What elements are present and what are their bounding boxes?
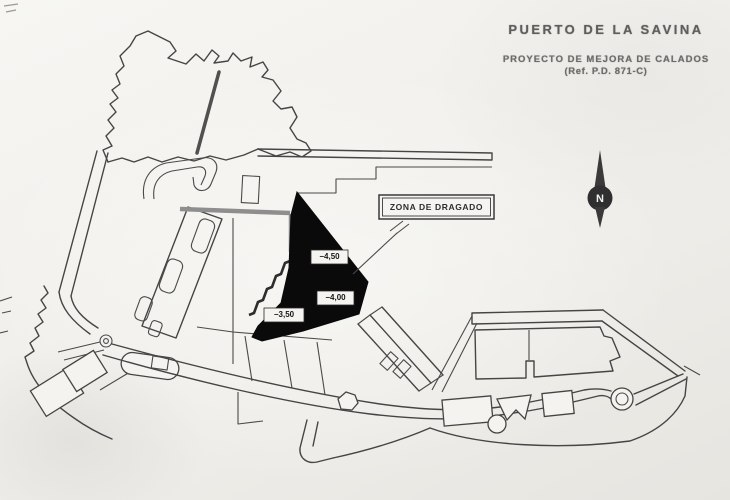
- scanned-plan-page: PUERTO DE LA SAVINA PROYECTO DE MEJORA D…: [0, 0, 730, 500]
- quay-buildings: [442, 388, 633, 433]
- ferry-pier: [358, 307, 443, 391]
- west-pier-slots: [133, 207, 222, 338]
- leader-hatch: [390, 221, 409, 234]
- oval-shed: [120, 351, 180, 381]
- southwest-buildings: [30, 350, 180, 416]
- mooring-slot: [133, 295, 153, 322]
- depth-value: −3,50: [274, 310, 295, 319]
- south-spit: [300, 420, 333, 462]
- north-label: N: [596, 193, 604, 205]
- hook-mole: [143, 158, 259, 204]
- depth-value: −4,00: [325, 293, 346, 302]
- depth-chip: −4,00: [317, 291, 354, 305]
- stepped-wharf-edge: [298, 167, 492, 193]
- leader-line: [353, 233, 397, 274]
- round-structure: [611, 388, 633, 410]
- dredge-zone-label: ZONA DE DRAGADO: [390, 202, 483, 212]
- breakwater-pier: [475, 327, 620, 379]
- depth-value: −4,50: [319, 252, 340, 261]
- depth-chip: −3,50: [264, 308, 304, 322]
- north-quay-wall: [258, 149, 492, 193]
- hill-track-line: [197, 72, 219, 153]
- east-breakwater: [430, 310, 700, 446]
- small-jetty-knob: [338, 392, 358, 410]
- depth-chip: −4,50: [311, 250, 348, 264]
- scan-artifact: [4, 4, 18, 12]
- warehouse: [542, 390, 574, 416]
- coastline-northwest: [103, 31, 311, 162]
- warehouse: [442, 396, 493, 426]
- dredge-zone-label-box: ZONA DE DRAGADO: [353, 195, 494, 274]
- roundabout: [100, 335, 112, 347]
- round-structure: [488, 415, 506, 433]
- north-arrow-icon: N: [588, 150, 613, 228]
- mooring-slot: [190, 217, 217, 254]
- harbor-plan-drawing: −4,50 −4,00 −3,50 ZONA DE DRAGADO: [0, 0, 730, 500]
